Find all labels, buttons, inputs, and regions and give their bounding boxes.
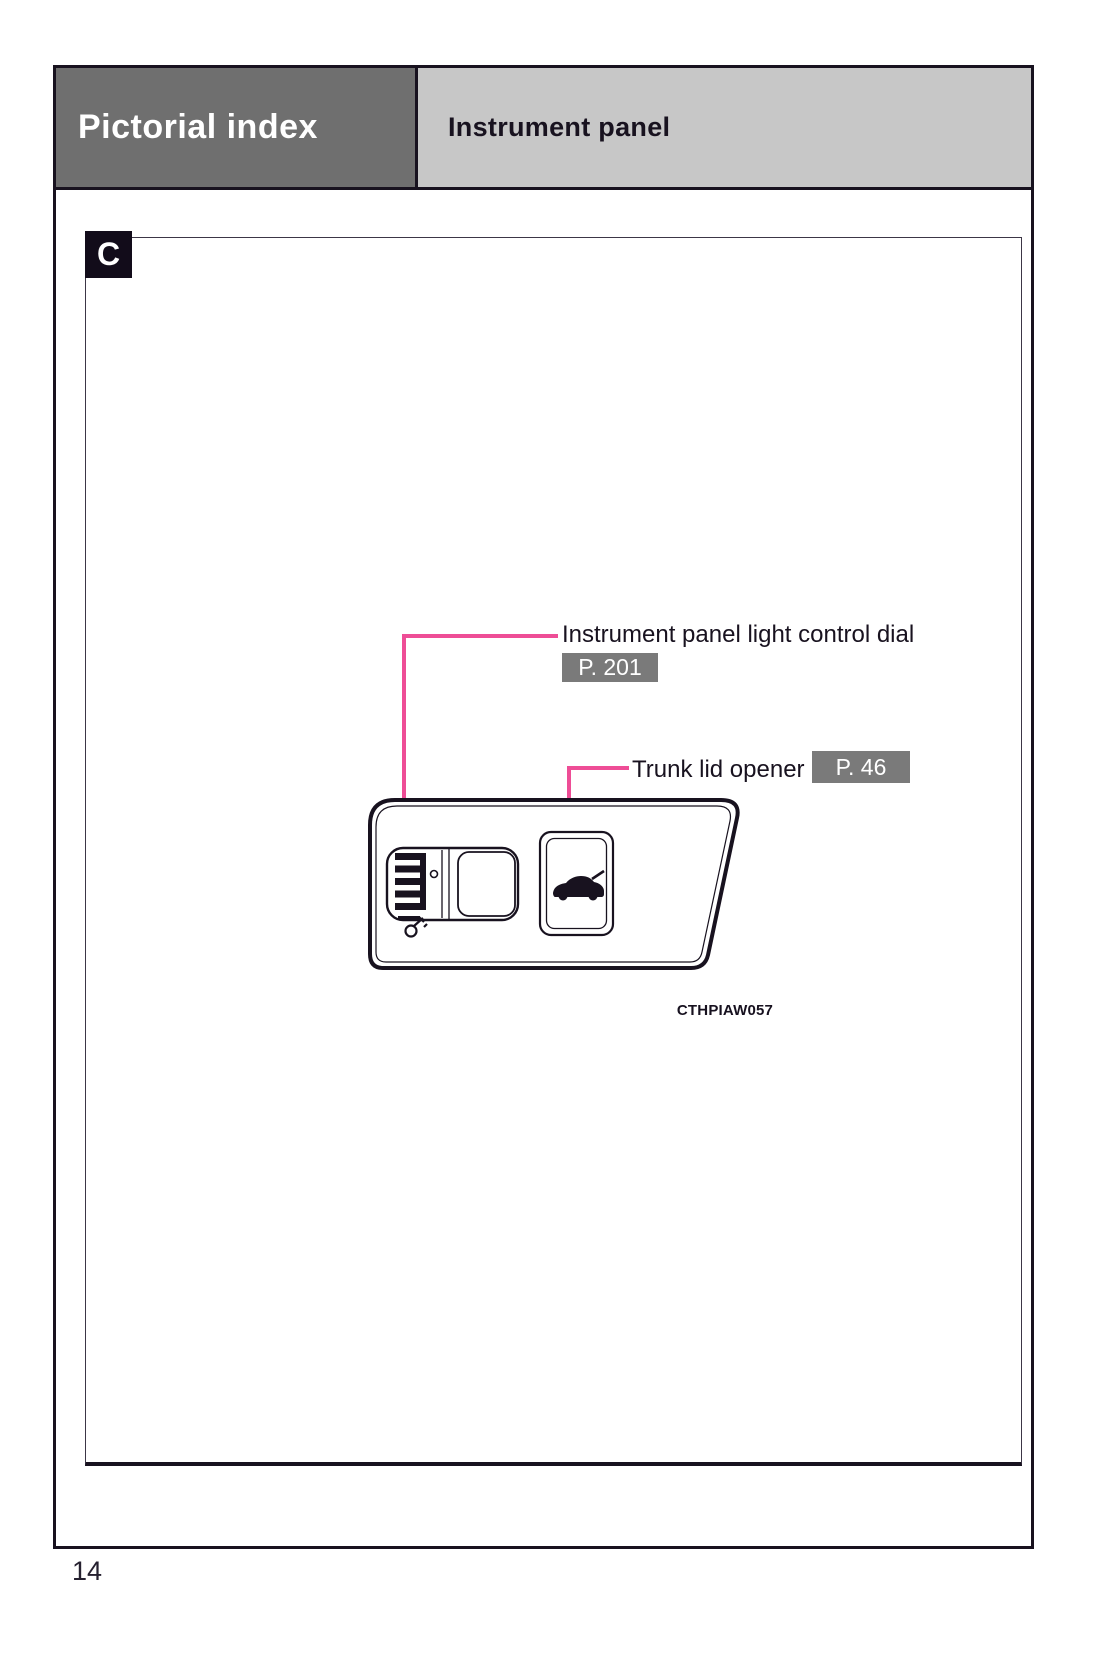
page-ref-badge-trunk-lid-opener: P. 46 bbox=[812, 751, 910, 783]
instrument-panel-figure bbox=[345, 790, 765, 980]
figure-code: CTHPIAW057 bbox=[645, 1002, 805, 1019]
header-topic-cell: Instrument panel bbox=[418, 68, 1031, 187]
page-ref-badge-light-control-dial: P. 201 bbox=[562, 653, 658, 682]
page-number: 14 bbox=[72, 1556, 102, 1587]
page-header: Pictorial index Instrument panel bbox=[53, 65, 1034, 190]
leader-line-2-horizontal bbox=[567, 766, 629, 770]
leader-line-1-horizontal bbox=[402, 634, 558, 638]
page-title: Instrument panel bbox=[448, 112, 670, 143]
section-title: Pictorial index bbox=[78, 108, 318, 147]
manual-page: Pictorial index Instrument panel C Instr… bbox=[0, 0, 1103, 1654]
header-section-cell: Pictorial index bbox=[56, 68, 418, 187]
section-marker-badge: C bbox=[85, 231, 132, 278]
callout-label-light-control-dial: Instrument panel light control dial bbox=[562, 621, 914, 649]
callout-label-trunk-lid-opener: Trunk lid opener bbox=[632, 756, 805, 784]
trunk-open-button-icon bbox=[540, 832, 613, 935]
